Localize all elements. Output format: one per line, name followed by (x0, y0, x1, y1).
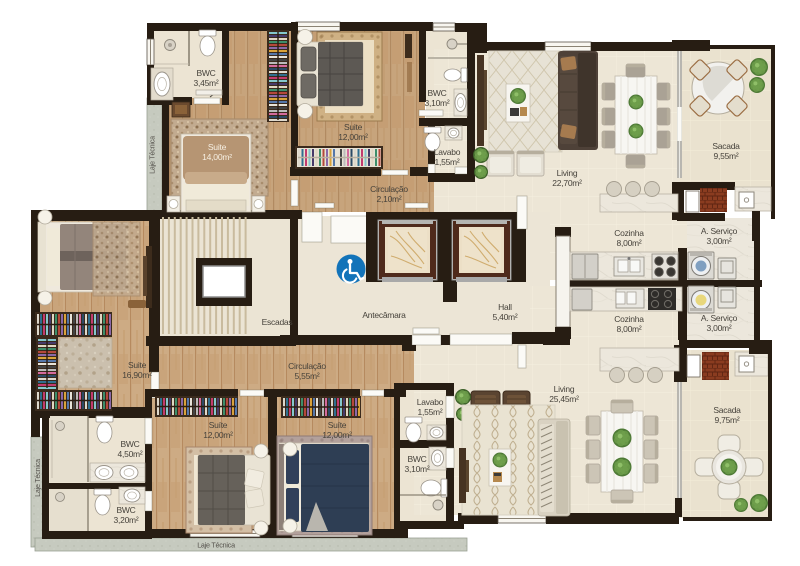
svg-text:Lavabo: Lavabo (417, 397, 444, 407)
svg-text:Laje Técnica: Laje Técnica (148, 136, 157, 174)
svg-text:BWC: BWC (196, 68, 215, 78)
svg-text:Living: Living (554, 384, 575, 394)
svg-text:1,55m²: 1,55m² (418, 407, 443, 417)
svg-text:12,00m²: 12,00m² (322, 430, 352, 440)
svg-text:3,10m²: 3,10m² (405, 464, 430, 474)
svg-text:1,55m²: 1,55m² (435, 157, 460, 167)
svg-text:3,20m²: 3,20m² (114, 515, 139, 525)
svg-text:A. Serviço: A. Serviço (701, 226, 738, 236)
svg-text:2,10m²: 2,10m² (377, 194, 402, 204)
svg-text:Suíte: Suíte (328, 420, 347, 430)
svg-text:Circulação: Circulação (288, 361, 326, 371)
svg-text:Sacada: Sacada (713, 405, 741, 415)
svg-text:Suite: Suite (344, 122, 363, 132)
svg-text:16,90m²: 16,90m² (122, 370, 152, 380)
svg-text:Antecâmara: Antecâmara (362, 310, 406, 320)
svg-text:Suíte: Suíte (209, 420, 228, 430)
svg-text:25,45m²: 25,45m² (549, 394, 579, 404)
svg-text:14,00m²: 14,00m² (202, 152, 232, 162)
svg-text:Laje Técnica: Laje Técnica (33, 459, 42, 497)
svg-text:3,00m²: 3,00m² (707, 323, 732, 333)
svg-text:Suite: Suite (208, 142, 227, 152)
svg-text:Sacada: Sacada (712, 141, 740, 151)
svg-text:5,55m²: 5,55m² (295, 371, 320, 381)
svg-text:Laje Técnica: Laje Técnica (197, 541, 235, 550)
svg-text:Cozinha: Cozinha (614, 228, 644, 238)
svg-text:12,00m²: 12,00m² (203, 430, 233, 440)
svg-text:9,75m²: 9,75m² (715, 415, 740, 425)
svg-text:8,00m²: 8,00m² (617, 238, 642, 248)
svg-text:Circulação: Circulação (370, 184, 408, 194)
svg-text:22,70m²: 22,70m² (552, 178, 582, 188)
svg-text:9,55m²: 9,55m² (714, 151, 739, 161)
svg-text:8,00m²: 8,00m² (617, 324, 642, 334)
svg-text:12,00m²: 12,00m² (338, 132, 368, 142)
svg-text:A. Serviço: A. Serviço (701, 313, 738, 323)
svg-text:4,50m²: 4,50m² (118, 449, 143, 459)
svg-text:3,10m²: 3,10m² (425, 98, 450, 108)
svg-text:Escadas: Escadas (262, 317, 293, 327)
svg-text:BWC: BWC (120, 439, 139, 449)
svg-text:Lavabo: Lavabo (434, 147, 461, 157)
svg-text:Suite: Suite (128, 360, 147, 370)
svg-text:5,40m²: 5,40m² (493, 312, 518, 322)
svg-text:BWC: BWC (407, 454, 426, 464)
svg-text:BWC: BWC (116, 505, 135, 515)
svg-text:Cozinha: Cozinha (614, 314, 644, 324)
svg-text:BWC: BWC (427, 88, 446, 98)
svg-text:Hall: Hall (498, 302, 512, 312)
svg-text:3,45m²: 3,45m² (194, 78, 219, 88)
svg-text:Living: Living (557, 168, 578, 178)
svg-text:3,00m²: 3,00m² (707, 236, 732, 246)
